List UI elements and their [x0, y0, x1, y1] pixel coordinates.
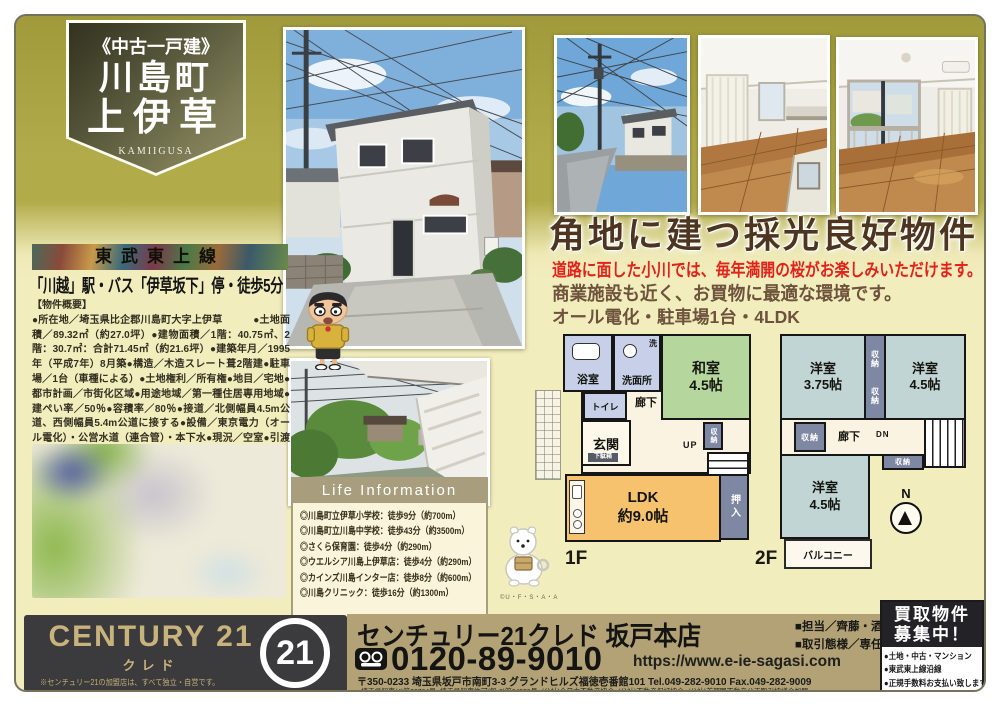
life-information-list: ◎川島町立伊草小学校：徒歩9分（約700m） ◎川島町立川島中学校：徒歩43分（…: [293, 503, 486, 607]
photo-interior-ldk: [698, 35, 830, 215]
plan1f-washer-mark: 洗: [649, 338, 657, 349]
property-outline-body: ●所在地／埼玉県比企郡川島町大字上伊草 ●土地面積／89.32㎡（約27.0坪）…: [32, 315, 290, 459]
north-compass: N: [884, 486, 928, 534]
floor-plan-2f: 洋室 3.75帖 収納 収納 洋室 4.5帖 収納 廊下 DN 収納 洋室 4.…: [780, 334, 966, 539]
stove-burner-icon: [573, 509, 582, 518]
phone-number: 0120-89-9010: [391, 640, 603, 678]
stove-burner-icon: [573, 520, 582, 529]
brand-sub-name: クレド: [34, 655, 268, 674]
plan1f-up-label: UP: [683, 440, 698, 450]
plan2f-storage-left: 収納: [794, 422, 826, 452]
shinchan-mascot: [300, 288, 356, 370]
headline-sub-brown-text: 商業施設も近く、お買物に最適な環境です。: [552, 280, 902, 306]
plan2f-center-closet: 収納 収納: [864, 334, 886, 420]
copyright-credit: ©U・F・S・A・A: [500, 592, 558, 601]
headline-sub-red: 道路に面した小川では、毎年満開の桜がお楽しみいただけます。: [552, 257, 986, 282]
brand-note: ※センチュリー21の加盟店は、すべて独立・自営です。: [40, 677, 239, 688]
website-url: https://www.e-ie-sagasi.com: [633, 653, 841, 671]
purchase-wanted-item: ●正規手数料お支払い致します: [884, 677, 980, 690]
life-item: ◎さくら保育園：徒歩4分（約290m）: [300, 540, 479, 555]
license-line: ■埼玉県知事(4)第20764号■埼玉県知事許可(般-2)第64523号■(公社…: [357, 686, 847, 692]
plan2f-hallway-label: 廊下: [838, 428, 860, 444]
life-information-title: Life Information: [293, 479, 486, 503]
compass-circle: [890, 502, 922, 534]
compass-north-letter: N: [884, 486, 928, 501]
title-badge-inner: 《中古一戸建》 川島町 上伊草 KAMIIGUSA: [69, 23, 243, 173]
plan2f-balcony: バルコニー: [784, 539, 872, 569]
headline-sub-red-text: 道路に面した小川では、毎年満開の桜がお楽しみいただけます。: [552, 257, 982, 282]
life-item: ◎川島町立川島中学校：徒歩43分（約3500m）: [300, 524, 479, 539]
shinchan-art: [300, 288, 356, 370]
plan1f-hallway-label: 廊下: [635, 394, 657, 410]
plan1f-stair-storage: 収納: [703, 422, 723, 450]
badge-category: 《中古一戸建》: [69, 33, 243, 59]
plan1f-oshiire-closet: 押入: [719, 474, 749, 540]
access-line-text: 「川越」駅・バス「伊草坂下」停・徒歩5分: [30, 272, 283, 298]
footer-brand-bar: CENTURY 21 クレド ※センチュリー21の加盟店は、すべて独立・自営です…: [24, 615, 347, 692]
shoe-box: 下駄箱: [588, 453, 618, 462]
plan1f-tatami-room: 和室 4.5帖: [661, 334, 751, 420]
title-badge: 《中古一戸建》 川島町 上伊草 KAMIIGUSA: [66, 20, 246, 176]
interior2-photo-art: [839, 40, 975, 212]
life-item: ◎川島町立伊草小学校：徒歩9分（約700m）: [300, 509, 479, 524]
plan1f-bathroom: 浴室: [563, 334, 613, 392]
feature-line: オール電化・駐車場1台・4LDK: [552, 304, 800, 329]
plan1f-ldk: LDK 約9.0帖: [565, 474, 721, 542]
shiro-dog-art: [496, 522, 552, 590]
plan2f-stairs: [924, 418, 966, 468]
bathtub-icon: [572, 343, 600, 360]
interior1-photo-art: [701, 38, 827, 212]
plan1f-entrance: 玄関 下駄箱: [581, 420, 631, 466]
freedial-phone-icon: [355, 648, 387, 670]
plan2f-western-room-c: 洋室 4.5帖: [780, 454, 870, 539]
plan1f-toilet: トイレ: [583, 392, 627, 420]
rail-line-banner: 東武東上線: [32, 244, 288, 270]
badge-town: 川島町: [69, 59, 243, 98]
kitchen-sink-icon: [572, 485, 582, 499]
purchase-wanted-item: ●東武東上線沿線: [884, 663, 980, 676]
floor-label-1f: 1F: [565, 548, 587, 570]
location-map-blur-art: [32, 444, 286, 598]
badge-name: 上伊草: [69, 98, 243, 140]
location-map: [32, 444, 286, 598]
flyer-page: 《中古一戸建》 川島町 上伊草 KAMIIGUSA: [14, 14, 986, 692]
badge-romaji: KAMIIGUSA: [69, 146, 243, 157]
plan2f-dn-label: DN: [876, 430, 890, 439]
life-item: ◎カインズ川島インター店：徒歩8分（約600m）: [300, 571, 479, 586]
headline-sub-brown: 商業施設も近く、お買物に最適な環境です。: [552, 280, 920, 306]
life-information-box: Life Information ◎川島町立伊草小学校：徒歩9分（約700m） …: [291, 477, 488, 625]
life-item: ◎ウエルシア川島上伊草店：徒歩4分（約290m）: [300, 555, 479, 570]
purchase-wanted-item: ●土地・中古・マンション: [884, 650, 980, 663]
plan2f-western-room-b: 洋室 4.5帖: [884, 334, 966, 420]
photo-interior-room: [836, 37, 978, 215]
street-photo-art: [557, 38, 687, 212]
kitchen-counter-icon: [569, 480, 585, 534]
life-item: ◎川島クリニック：徒歩16分（約1300m）: [300, 586, 479, 601]
floor-plan-1f: 浴室 洗 洗面所 和室 4.5帖 トイレ 玄関 下駄箱 廊下 収納 UP LDK…: [557, 334, 751, 542]
purchase-wanted-title: 買取物件 募集中！: [882, 602, 982, 647]
century21-seal-icon: 21: [260, 618, 330, 688]
brand-wordmark: CENTURY 21: [34, 620, 268, 654]
sink-icon: [623, 344, 637, 358]
property-outline-title: 【物件概要】: [32, 300, 92, 311]
photo-street-corner: [554, 35, 690, 215]
plan2f-western-room-a: 洋室 3.75帖: [780, 334, 866, 420]
floor-label-2f: 2F: [755, 548, 777, 570]
feature-line-text: オール電化・駐車場1台・4LDK: [552, 304, 800, 329]
plan2f-storage-under-stairs: 収納: [882, 454, 924, 470]
headline: 角地に建つ採光良好物件: [549, 206, 986, 258]
shiro-dog-mascot: [496, 522, 552, 590]
purchase-wanted-box: 買取物件 募集中！ ●土地・中古・マンション ●東武東上線沿線 ●正規手数料お支…: [880, 600, 984, 692]
purchase-wanted-list: ●土地・中古・マンション ●東武東上線沿線 ●正規手数料お支払い致します: [882, 647, 982, 692]
plan1f-washroom: 洗 洗面所: [613, 334, 661, 392]
compass-needle-icon: [898, 511, 912, 525]
